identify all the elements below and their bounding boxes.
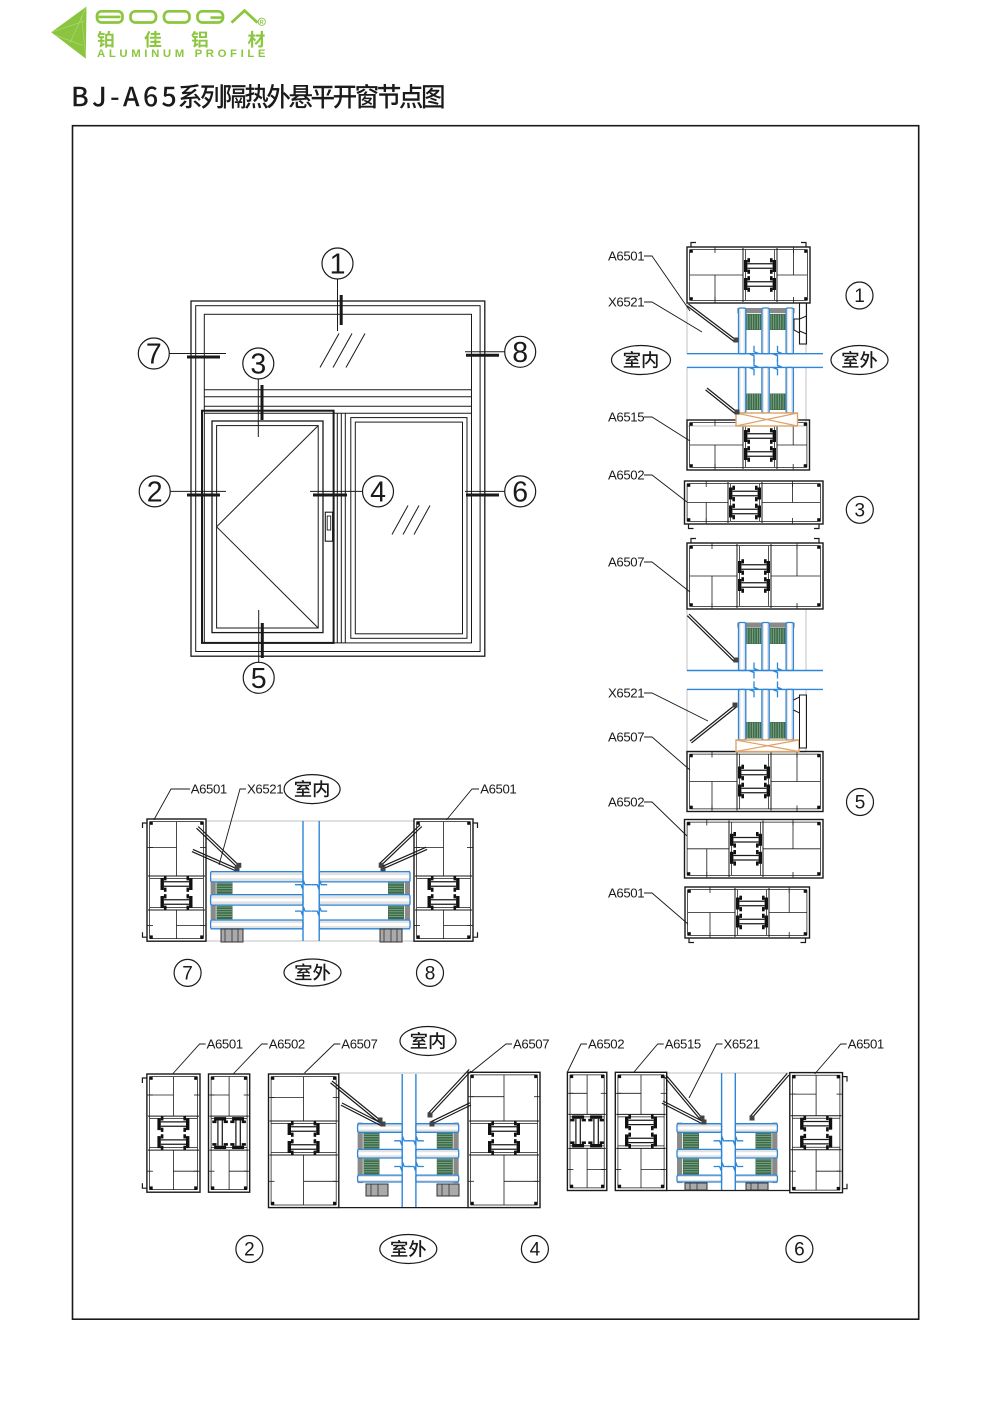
svg-text:A6502: A6502 (608, 468, 644, 483)
svg-text:A6501: A6501 (191, 782, 227, 797)
svg-text:X6521: X6521 (608, 295, 644, 310)
svg-text:A6502: A6502 (608, 795, 644, 810)
svg-text:A6515: A6515 (665, 1037, 701, 1052)
svg-text:A6501: A6501 (608, 249, 644, 264)
svg-text:5: 5 (251, 663, 267, 695)
svg-text:3: 3 (250, 349, 266, 381)
svg-text:2: 2 (147, 476, 163, 508)
svg-text:A6515: A6515 (608, 410, 644, 425)
svg-text:1: 1 (330, 249, 346, 281)
svg-text:A6507: A6507 (608, 555, 644, 570)
svg-text:7: 7 (146, 339, 162, 371)
svg-text:4: 4 (530, 1240, 541, 1261)
svg-text:A6507: A6507 (608, 730, 644, 745)
svg-text:6: 6 (794, 1240, 805, 1261)
svg-text:A6502: A6502 (269, 1037, 305, 1052)
svg-text:8: 8 (512, 337, 528, 369)
svg-text:A6502: A6502 (588, 1037, 624, 1052)
svg-text:A6501: A6501 (848, 1037, 884, 1052)
svg-text:2: 2 (244, 1240, 255, 1261)
svg-text:6: 6 (512, 476, 528, 508)
svg-text:A6501: A6501 (608, 886, 644, 901)
svg-text:1: 1 (854, 286, 865, 307)
svg-text:A6507: A6507 (513, 1037, 549, 1052)
svg-text:A6501: A6501 (480, 782, 516, 797)
svg-text:4: 4 (370, 476, 386, 508)
svg-text:R: R (260, 20, 264, 26)
svg-text:A6507: A6507 (341, 1037, 377, 1052)
svg-text:5: 5 (855, 793, 866, 814)
svg-text:ALUMINUM PROFILE: ALUMINUM PROFILE (97, 48, 269, 60)
svg-text:X6521: X6521 (724, 1037, 760, 1052)
svg-text:A6501: A6501 (207, 1037, 243, 1052)
svg-text:8: 8 (425, 964, 436, 985)
svg-text:7: 7 (182, 964, 193, 985)
svg-text:X6521: X6521 (608, 686, 644, 701)
svg-text:X6521: X6521 (247, 782, 283, 797)
svg-text:3: 3 (855, 501, 866, 522)
